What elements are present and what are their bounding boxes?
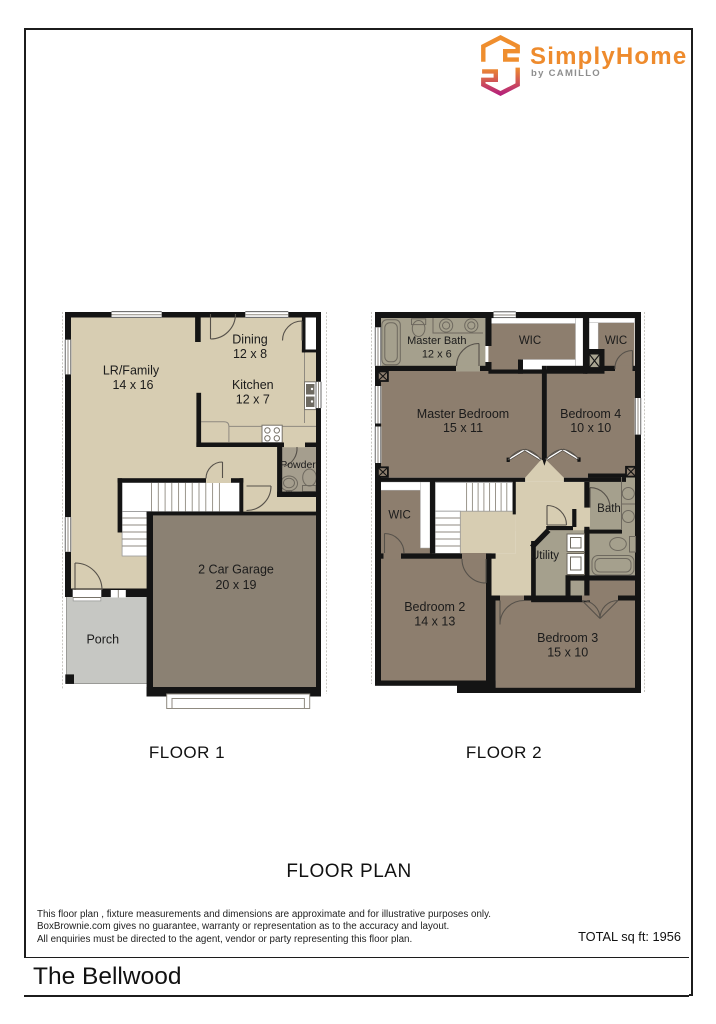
svg-text:WIC: WIC bbox=[605, 335, 627, 347]
svg-text:LR/Family: LR/Family bbox=[103, 364, 160, 378]
svg-text:15 x 11: 15 x 11 bbox=[443, 421, 483, 435]
svg-text:Utility: Utility bbox=[531, 550, 559, 562]
svg-text:Bedroom 2: Bedroom 2 bbox=[404, 600, 465, 614]
svg-text:12 x 6: 12 x 6 bbox=[422, 349, 452, 361]
svg-text:12 x 8: 12 x 8 bbox=[233, 347, 267, 361]
svg-text:2 Car Garage: 2 Car Garage bbox=[198, 563, 274, 577]
svg-text:Master Bedroom: Master Bedroom bbox=[417, 407, 509, 421]
svg-text:14 x 16: 14 x 16 bbox=[112, 378, 153, 392]
svg-text:10 x 10: 10 x 10 bbox=[570, 421, 611, 435]
svg-text:14 x 13: 14 x 13 bbox=[414, 615, 455, 629]
svg-text:WIC: WIC bbox=[388, 510, 410, 522]
svg-text:Bedroom 3: Bedroom 3 bbox=[537, 631, 598, 645]
svg-text:Powder: Powder bbox=[280, 459, 316, 471]
svg-text:20 x 19: 20 x 19 bbox=[215, 578, 256, 592]
svg-text:15 x 10: 15 x 10 bbox=[547, 646, 588, 660]
svg-text:12 x 7: 12 x 7 bbox=[236, 393, 270, 407]
svg-text:Bath: Bath bbox=[597, 503, 621, 515]
svg-text:WIC: WIC bbox=[519, 335, 541, 347]
svg-text:Master Bath: Master Bath bbox=[407, 335, 466, 347]
svg-text:Porch: Porch bbox=[86, 633, 119, 647]
svg-text:Dining: Dining bbox=[232, 333, 267, 347]
svg-text:Kitchen: Kitchen bbox=[232, 378, 274, 392]
svg-text:Bedroom 4: Bedroom 4 bbox=[560, 407, 621, 421]
